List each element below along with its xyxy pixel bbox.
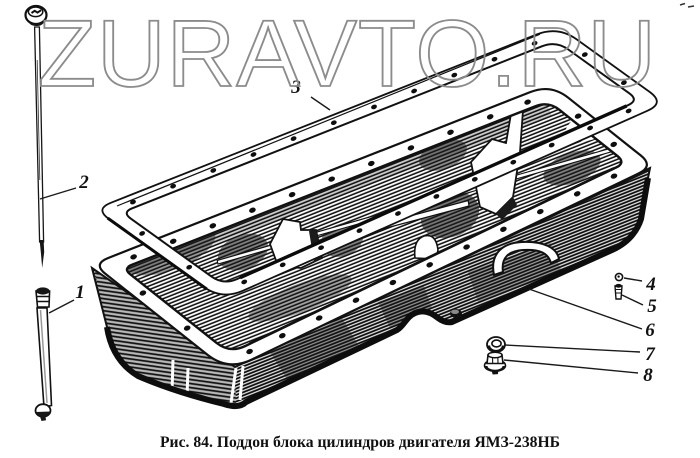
svg-text:7: 7 [645,344,656,365]
svg-text:2: 2 [78,172,89,193]
svg-text:6: 6 [645,320,655,341]
svg-text:5: 5 [647,296,657,317]
svg-text:Рис. 84. Поддон блока цилиндро: Рис. 84. Поддон блока цилиндров двигател… [160,434,560,451]
svg-text:1: 1 [75,282,85,303]
svg-text:ZURAVTO.RU: ZURAVTO.RU [38,1,656,107]
svg-text:8: 8 [643,365,653,386]
svg-text:4: 4 [645,274,656,295]
